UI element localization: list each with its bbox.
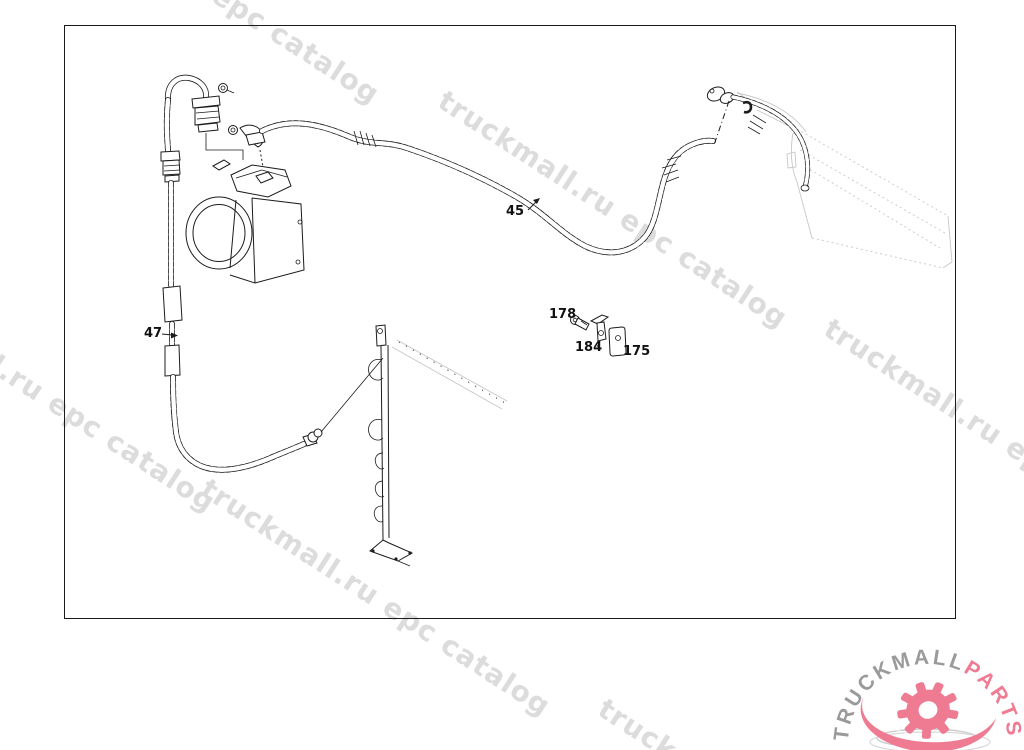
gear-icon <box>889 673 966 746</box>
pressure-hose-45 <box>262 123 713 252</box>
part-label-45: 45 <box>506 205 524 218</box>
return-hose-elbow <box>168 78 243 160</box>
part-label-175: 175 <box>623 345 650 358</box>
part-label-47: 47 <box>144 327 162 340</box>
reservoir-outline <box>737 92 952 268</box>
logo-text-pink: PARTS <box>960 656 1024 740</box>
parts-catalog-page: truckmall.ru epc catalog truckmall.ru ep… <box>0 0 1024 750</box>
part-label-178: 178 <box>549 308 576 321</box>
mounting-bracket <box>369 325 412 566</box>
part-label-184: 184 <box>575 341 602 354</box>
supply-pipe-flange <box>705 84 809 191</box>
truckmall-parts-logo: TRUCKMALLPARTS <box>826 618 1024 750</box>
pump-body <box>186 160 304 283</box>
frame-channel-outline <box>392 340 507 409</box>
return-hose-47 <box>161 100 383 470</box>
